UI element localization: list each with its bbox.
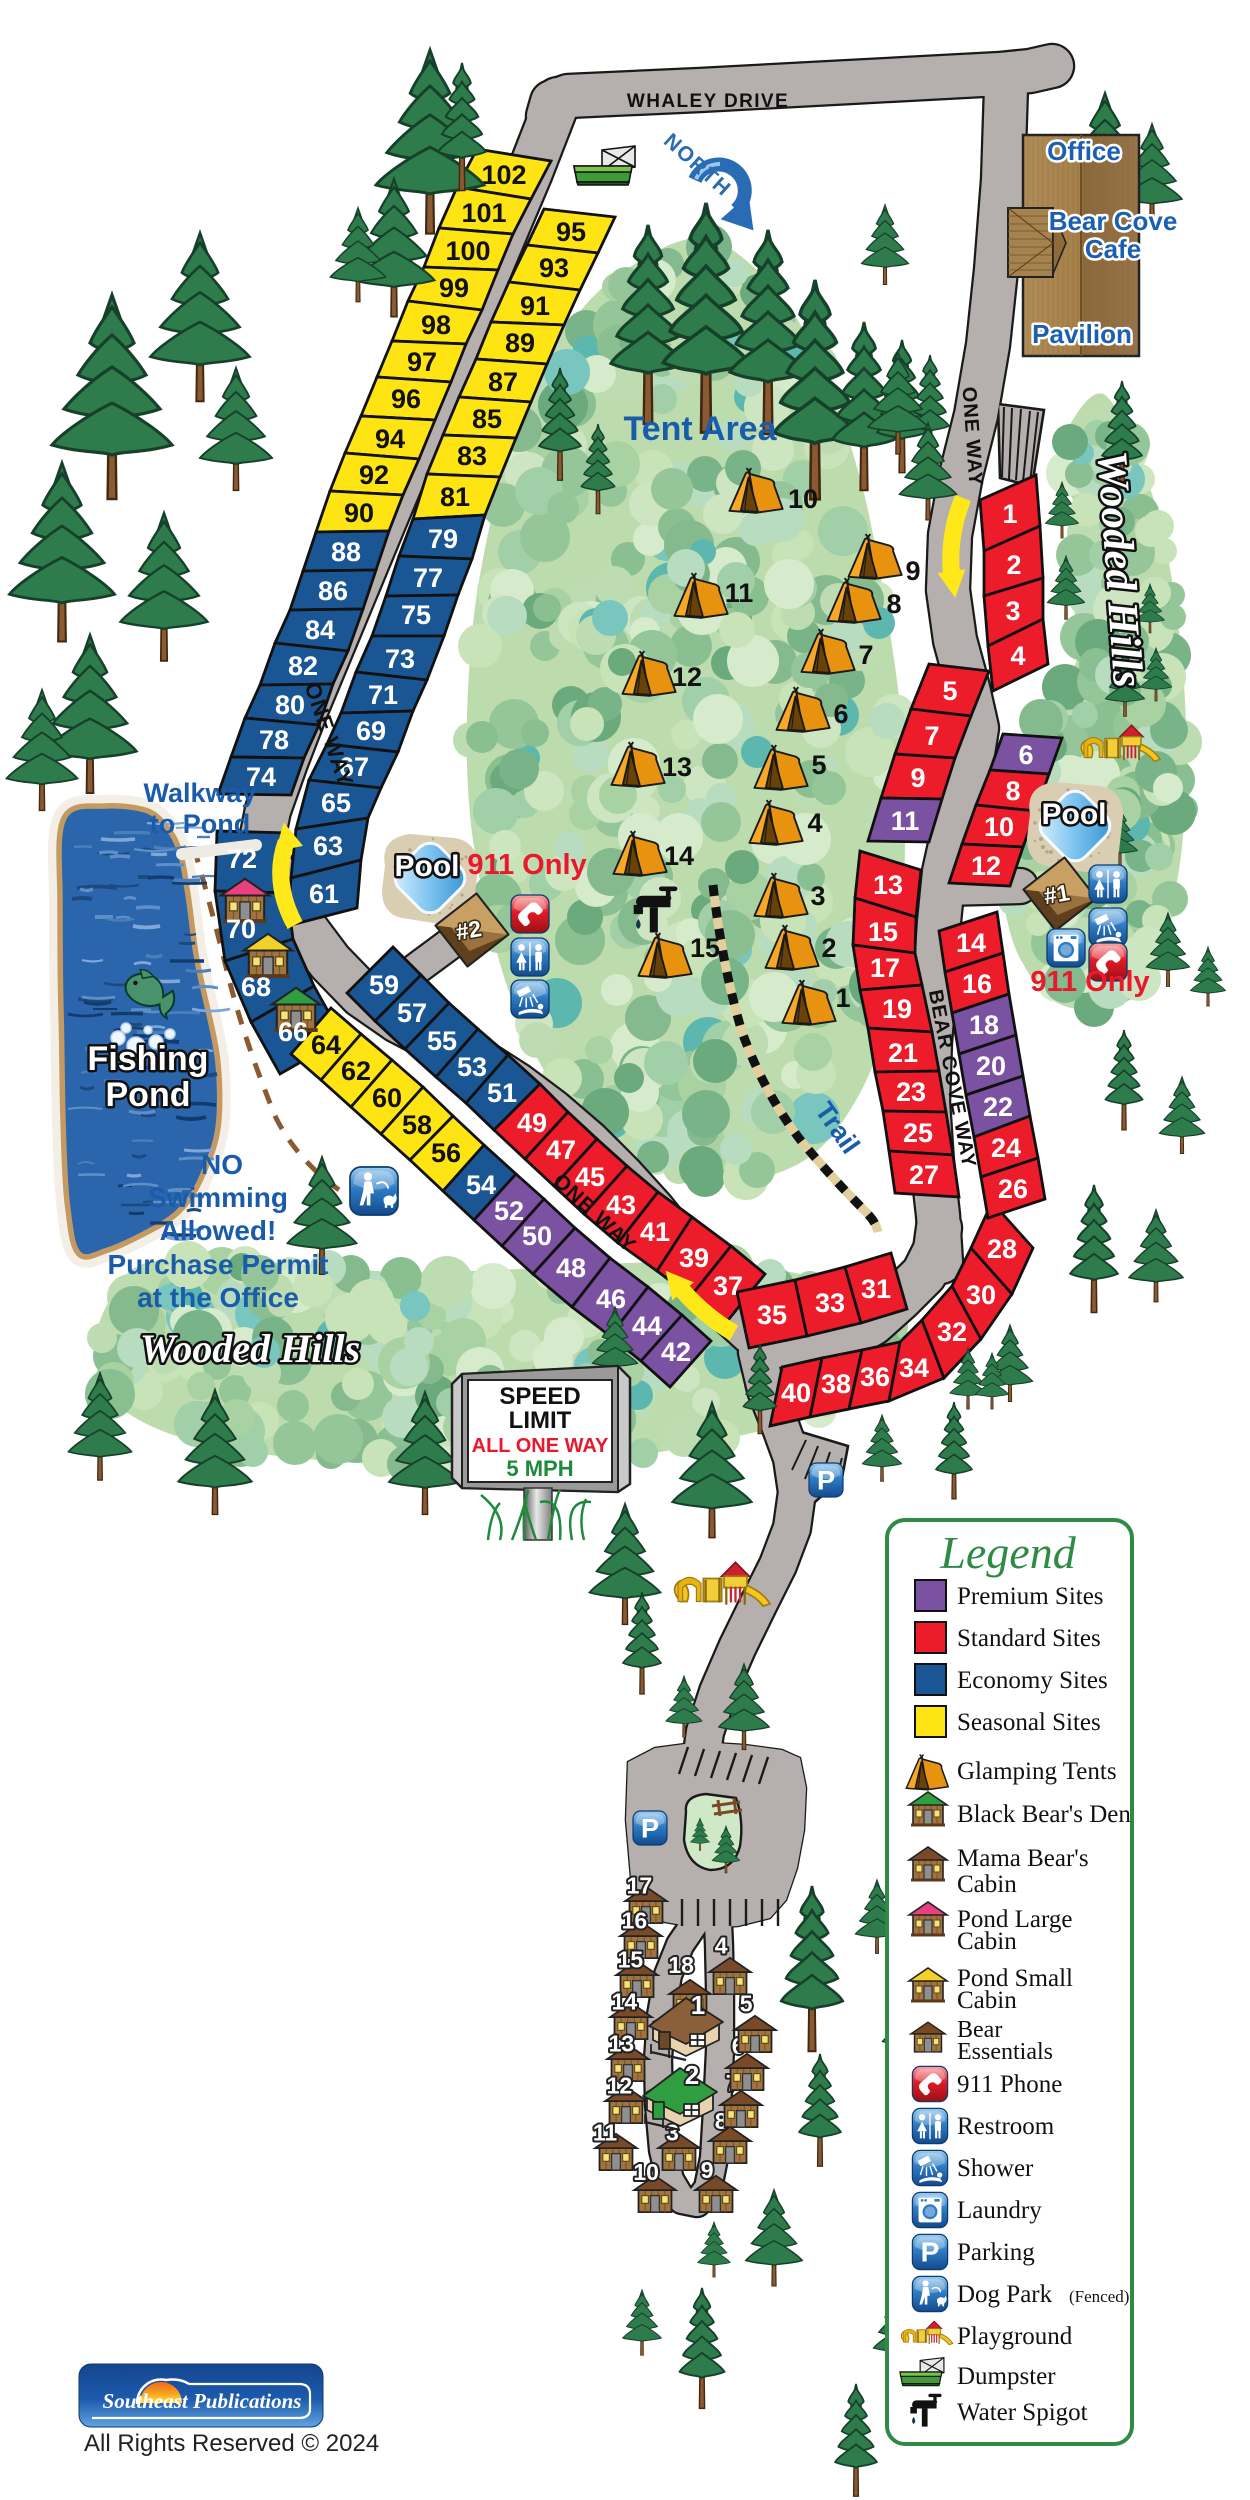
svg-text:Essentials: Essentials bbox=[957, 2039, 1053, 2065]
svg-text:90: 90 bbox=[344, 498, 374, 528]
svg-text:Laundry: Laundry bbox=[957, 2197, 1042, 2224]
svg-text:P: P bbox=[817, 1464, 835, 1495]
svg-text:911 Only: 911 Only bbox=[1030, 966, 1149, 998]
svg-text:Allowed!: Allowed! bbox=[160, 1215, 277, 1246]
svg-text:6: 6 bbox=[833, 699, 848, 729]
svg-text:68: 68 bbox=[241, 972, 271, 1002]
svg-text:3: 3 bbox=[1005, 596, 1020, 626]
svg-text:65: 65 bbox=[321, 788, 351, 818]
svg-text:Southeast Publications: Southeast Publications bbox=[103, 2389, 302, 2413]
svg-text:20: 20 bbox=[976, 1051, 1006, 1081]
svg-text:at the Office: at the Office bbox=[137, 1282, 299, 1313]
svg-text:62: 62 bbox=[341, 1056, 371, 1086]
svg-text:12: 12 bbox=[672, 662, 702, 692]
svg-text:1: 1 bbox=[835, 983, 850, 1013]
svg-text:NO: NO bbox=[201, 1149, 243, 1180]
svg-text:31: 31 bbox=[861, 1274, 891, 1304]
svg-text:17: 17 bbox=[870, 953, 900, 983]
svg-text:Mama Bear's: Mama Bear's bbox=[957, 1845, 1089, 1872]
svg-text:Legend: Legend bbox=[939, 1527, 1076, 1578]
svg-text:12: 12 bbox=[971, 851, 1001, 881]
svg-text:81: 81 bbox=[440, 482, 470, 512]
svg-text:69: 69 bbox=[356, 716, 386, 746]
svg-text:Pool: Pool bbox=[395, 850, 460, 883]
svg-text:38: 38 bbox=[821, 1369, 851, 1399]
svg-text:911 Phone: 911 Phone bbox=[957, 2071, 1062, 2098]
svg-text:89: 89 bbox=[505, 328, 535, 358]
svg-text:7: 7 bbox=[858, 640, 873, 670]
svg-text:15: 15 bbox=[690, 933, 720, 963]
svg-text:1: 1 bbox=[1002, 499, 1017, 529]
svg-text:94: 94 bbox=[375, 424, 405, 454]
svg-text:5: 5 bbox=[811, 750, 826, 780]
svg-text:56: 56 bbox=[431, 1138, 461, 1168]
svg-text:60: 60 bbox=[372, 1083, 402, 1113]
svg-text:13: 13 bbox=[662, 752, 692, 782]
svg-text:99: 99 bbox=[439, 273, 469, 303]
svg-text:1: 1 bbox=[691, 1990, 705, 2020]
svg-text:88: 88 bbox=[331, 537, 361, 567]
svg-text:#1: #1 bbox=[1042, 879, 1072, 909]
svg-text:53: 53 bbox=[457, 1052, 487, 1082]
svg-text:24: 24 bbox=[991, 1133, 1021, 1163]
svg-text:87: 87 bbox=[488, 367, 518, 397]
svg-text:101: 101 bbox=[461, 198, 506, 228]
svg-text:73: 73 bbox=[385, 644, 415, 674]
svg-text:41: 41 bbox=[640, 1217, 670, 1247]
svg-text:Pavilion: Pavilion bbox=[1032, 319, 1132, 349]
svg-text:Cabin: Cabin bbox=[957, 1871, 1017, 1898]
svg-text:Wooded Hills: Wooded Hills bbox=[140, 1326, 360, 1371]
svg-text:14: 14 bbox=[612, 1988, 638, 2014]
svg-text:51: 51 bbox=[487, 1078, 517, 1108]
svg-text:P: P bbox=[641, 1812, 659, 1843]
svg-text:2: 2 bbox=[685, 2060, 699, 2090]
svg-text:78: 78 bbox=[259, 725, 289, 755]
svg-text:96: 96 bbox=[391, 384, 421, 414]
svg-text:2: 2 bbox=[821, 933, 836, 963]
svg-text:Cafe: Cafe bbox=[1085, 234, 1141, 264]
svg-text:82: 82 bbox=[288, 651, 318, 681]
svg-text:15: 15 bbox=[868, 917, 898, 947]
svg-text:10: 10 bbox=[788, 484, 818, 514]
svg-text:102: 102 bbox=[481, 160, 526, 190]
svg-text:34: 34 bbox=[899, 1353, 929, 1383]
svg-text:50: 50 bbox=[522, 1221, 552, 1251]
svg-text:95: 95 bbox=[556, 217, 586, 247]
svg-text:75: 75 bbox=[401, 600, 431, 630]
svg-text:WHALEY DRIVE: WHALEY DRIVE bbox=[627, 91, 789, 112]
svg-text:Swimming: Swimming bbox=[148, 1182, 288, 1213]
svg-text:16: 16 bbox=[622, 1907, 648, 1933]
svg-text:36: 36 bbox=[860, 1362, 890, 1392]
svg-text:Black Bear's Den: Black Bear's Den bbox=[957, 1801, 1131, 1828]
svg-text:23: 23 bbox=[896, 1077, 926, 1107]
svg-text:13: 13 bbox=[873, 870, 903, 900]
svg-text:4: 4 bbox=[1010, 641, 1025, 671]
svg-text:Pond: Pond bbox=[106, 1076, 191, 1114]
svg-text:21: 21 bbox=[888, 1038, 918, 1068]
svg-text:ALL ONE WAY: ALL ONE WAY bbox=[472, 1435, 609, 1457]
svg-text:LIMIT: LIMIT bbox=[509, 1407, 572, 1434]
svg-text:63: 63 bbox=[313, 831, 343, 861]
svg-text:77: 77 bbox=[413, 563, 443, 593]
svg-text:39: 39 bbox=[679, 1243, 709, 1273]
svg-text:66: 66 bbox=[278, 1017, 308, 1047]
svg-text:91: 91 bbox=[520, 291, 550, 321]
svg-text:Dumpster: Dumpster bbox=[957, 2363, 1056, 2390]
svg-text:17: 17 bbox=[627, 1872, 653, 1898]
svg-text:8: 8 bbox=[886, 589, 901, 619]
svg-text:12: 12 bbox=[607, 2072, 633, 2098]
svg-text:Fishing: Fishing bbox=[88, 1040, 209, 1078]
svg-text:26: 26 bbox=[998, 1174, 1028, 1204]
svg-text:28: 28 bbox=[987, 1234, 1017, 1264]
svg-text:Shower: Shower bbox=[957, 2155, 1034, 2182]
svg-text:5: 5 bbox=[942, 676, 957, 706]
svg-text:35: 35 bbox=[757, 1300, 787, 1330]
svg-text:10: 10 bbox=[984, 812, 1014, 842]
svg-text:100: 100 bbox=[445, 236, 490, 266]
svg-text:Tent Area: Tent Area bbox=[623, 410, 777, 448]
svg-text:55: 55 bbox=[427, 1026, 457, 1056]
svg-text:5 MPH: 5 MPH bbox=[506, 1456, 573, 1481]
svg-text:Glamping Tents: Glamping Tents bbox=[957, 1758, 1117, 1785]
svg-text:84: 84 bbox=[305, 615, 335, 645]
svg-text:Parking: Parking bbox=[957, 2239, 1035, 2266]
svg-text:52: 52 bbox=[494, 1196, 524, 1226]
svg-text:11: 11 bbox=[593, 2119, 618, 2145]
svg-text:Purchase Permit: Purchase Permit bbox=[108, 1249, 329, 1280]
svg-text:Seasonal Sites: Seasonal Sites bbox=[957, 1709, 1101, 1736]
svg-text:7: 7 bbox=[924, 721, 939, 751]
svg-text:18: 18 bbox=[668, 1952, 694, 1978]
svg-text:10: 10 bbox=[633, 2159, 659, 2185]
svg-text:Restroom: Restroom bbox=[957, 2113, 1055, 2140]
svg-text:22: 22 bbox=[983, 1092, 1013, 1122]
svg-text:33: 33 bbox=[815, 1288, 845, 1318]
svg-text:4: 4 bbox=[807, 808, 822, 838]
svg-text:97: 97 bbox=[407, 347, 437, 377]
svg-text:11: 11 bbox=[725, 578, 754, 608]
svg-text:Walkway: Walkway bbox=[143, 778, 256, 808]
svg-text:92: 92 bbox=[359, 460, 389, 490]
svg-text:61: 61 bbox=[309, 879, 339, 909]
svg-text:8: 8 bbox=[1005, 776, 1020, 806]
svg-text:18: 18 bbox=[969, 1010, 999, 1040]
svg-text:19: 19 bbox=[882, 994, 912, 1024]
svg-text:14: 14 bbox=[956, 928, 986, 958]
svg-text:Cabin: Cabin bbox=[957, 1928, 1017, 1955]
svg-text:27: 27 bbox=[909, 1160, 939, 1190]
svg-text:All Rights Reserved © 2024: All Rights Reserved © 2024 bbox=[84, 2430, 379, 2457]
svg-text:Standard Sites: Standard Sites bbox=[957, 1625, 1101, 1652]
svg-text:Economy Sites: Economy Sites bbox=[957, 1667, 1108, 1694]
svg-text:37: 37 bbox=[713, 1271, 743, 1301]
svg-text:47: 47 bbox=[546, 1135, 576, 1165]
svg-text:42: 42 bbox=[661, 1337, 691, 1367]
svg-text:85: 85 bbox=[472, 404, 502, 434]
svg-text:11: 11 bbox=[891, 806, 920, 836]
svg-text:911 Only: 911 Only bbox=[467, 849, 586, 881]
svg-text:59: 59 bbox=[369, 970, 399, 1000]
svg-text:46: 46 bbox=[596, 1284, 626, 1314]
svg-text:(Fenced): (Fenced) bbox=[1069, 2287, 1129, 2306]
svg-text:2: 2 bbox=[1006, 550, 1021, 580]
svg-text:86: 86 bbox=[318, 576, 348, 606]
svg-text:to Pond: to Pond bbox=[150, 809, 250, 839]
svg-text:71: 71 bbox=[368, 680, 398, 710]
svg-text:98: 98 bbox=[421, 310, 451, 340]
svg-text:64: 64 bbox=[311, 1030, 341, 1060]
svg-text:9: 9 bbox=[905, 556, 920, 586]
svg-text:Premium Sites: Premium Sites bbox=[957, 1583, 1104, 1610]
svg-text:9: 9 bbox=[910, 763, 925, 793]
svg-text:32: 32 bbox=[937, 1317, 967, 1347]
svg-text:80: 80 bbox=[275, 690, 305, 720]
svg-text:25: 25 bbox=[903, 1118, 933, 1148]
svg-text:#2: #2 bbox=[454, 915, 484, 945]
svg-text:9: 9 bbox=[701, 2157, 714, 2183]
svg-text:Playground: Playground bbox=[957, 2323, 1073, 2350]
svg-text:4: 4 bbox=[715, 1932, 728, 1958]
svg-text:Water Spigot: Water Spigot bbox=[957, 2399, 1088, 2426]
svg-text:30: 30 bbox=[966, 1280, 996, 1310]
svg-text:72: 72 bbox=[227, 844, 257, 874]
svg-text:6: 6 bbox=[1018, 740, 1033, 770]
svg-text:Bear Cove: Bear Cove bbox=[1049, 206, 1178, 236]
svg-text:54: 54 bbox=[466, 1170, 496, 1200]
svg-text:3: 3 bbox=[810, 881, 825, 911]
svg-text:49: 49 bbox=[517, 1108, 547, 1138]
svg-text:15: 15 bbox=[618, 1946, 644, 1972]
svg-text:83: 83 bbox=[457, 441, 487, 471]
svg-text:14: 14 bbox=[664, 841, 694, 871]
svg-text:40: 40 bbox=[781, 1378, 811, 1408]
svg-text:Cabin: Cabin bbox=[957, 1987, 1017, 2014]
svg-text:93: 93 bbox=[539, 253, 569, 283]
svg-text:48: 48 bbox=[556, 1253, 586, 1283]
svg-text:Dog Park: Dog Park bbox=[957, 2281, 1053, 2308]
svg-text:P: P bbox=[921, 2237, 940, 2268]
svg-text:44: 44 bbox=[632, 1311, 662, 1341]
svg-text:13: 13 bbox=[609, 2030, 635, 2056]
svg-text:Office: Office bbox=[1047, 136, 1121, 166]
svg-text:58: 58 bbox=[402, 1110, 432, 1140]
svg-text:57: 57 bbox=[397, 998, 427, 1028]
svg-text:SPEED: SPEED bbox=[499, 1383, 580, 1410]
svg-text:Pool: Pool bbox=[1042, 798, 1107, 831]
svg-text:16: 16 bbox=[962, 969, 992, 999]
svg-text:79: 79 bbox=[428, 524, 458, 554]
svg-text:70: 70 bbox=[226, 914, 256, 944]
